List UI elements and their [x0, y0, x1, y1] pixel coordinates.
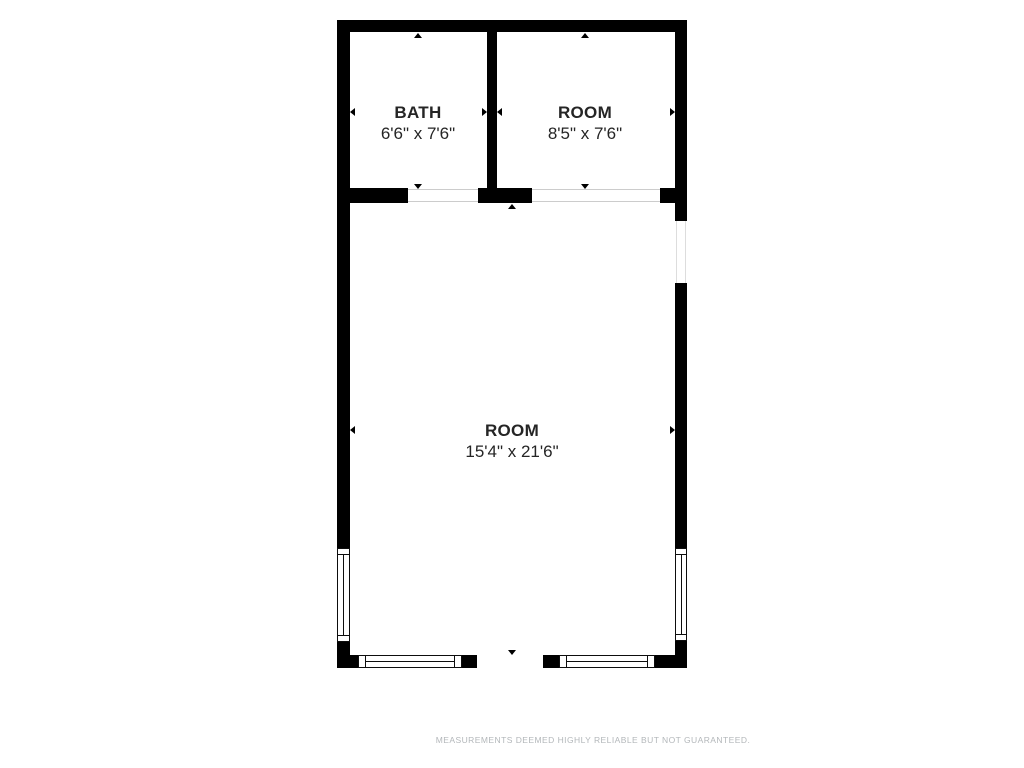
- measure-arrow-down-main-room: [508, 650, 516, 655]
- wall-mid-center: [478, 188, 532, 203]
- measure-arrow-up-bath: [414, 33, 422, 38]
- room-dimensions: 6'6" x 7'6": [381, 123, 455, 144]
- measure-arrow-right-bath: [482, 108, 487, 116]
- measure-arrow-left-bath: [350, 108, 355, 116]
- room-dimensions: 8'5" x 7'6": [548, 123, 622, 144]
- opening-bath-bottom-line: [408, 201, 478, 202]
- measure-arrow-down-bath: [414, 184, 422, 189]
- wall-left-upper: [337, 32, 350, 548]
- wall-mid-left: [337, 188, 408, 203]
- measure-arrow-left-room2: [497, 108, 502, 116]
- wall-bottom-corner-right: [655, 655, 687, 668]
- wall-bottom-seg2: [543, 655, 559, 668]
- wall-mid-right: [660, 188, 687, 203]
- opening-room-bottom-line: [532, 201, 660, 202]
- floor-plan: BATH 6'6" x 7'6" ROOM 8'5" x 7'6" ROOM 1…: [0, 0, 1024, 768]
- room-name: ROOM: [465, 420, 558, 441]
- wall-top: [337, 20, 687, 32]
- measure-arrow-down-room2: [581, 184, 589, 189]
- room-dimensions: 15'4" x 21'6": [465, 441, 558, 462]
- measure-arrow-up-main-room: [508, 204, 516, 209]
- measure-arrow-up-room2: [581, 33, 589, 38]
- room-name: ROOM: [548, 102, 622, 123]
- measure-arrow-right-main-room: [670, 426, 675, 434]
- wall-bottom-corner-left: [337, 655, 358, 668]
- measure-arrow-right-room2: [670, 108, 675, 116]
- measure-arrow-left-main-room: [350, 426, 355, 434]
- window-bottom-left: [358, 655, 462, 668]
- room-name: BATH: [381, 102, 455, 123]
- window-left-wall: [337, 548, 350, 642]
- room-label-bath: BATH 6'6" x 7'6": [381, 102, 455, 144]
- window-right-wall: [675, 548, 687, 641]
- opening-right-wall-inner-line: [676, 221, 677, 283]
- disclaimer-text: MEASUREMENTS DEEMED HIGHLY RELIABLE BUT …: [436, 735, 751, 745]
- opening-room-top-line: [532, 189, 660, 190]
- room-label-main: ROOM 15'4" x 21'6": [465, 420, 558, 462]
- wall-bottom-seg1: [462, 655, 477, 668]
- wall-right-mid: [675, 283, 687, 548]
- room-label-top-right: ROOM 8'5" x 7'6": [548, 102, 622, 144]
- wall-divider-vertical: [487, 32, 497, 188]
- window-bottom-right: [559, 655, 655, 668]
- opening-right-wall-outer-line: [685, 221, 686, 283]
- opening-bath-top-line: [408, 189, 478, 190]
